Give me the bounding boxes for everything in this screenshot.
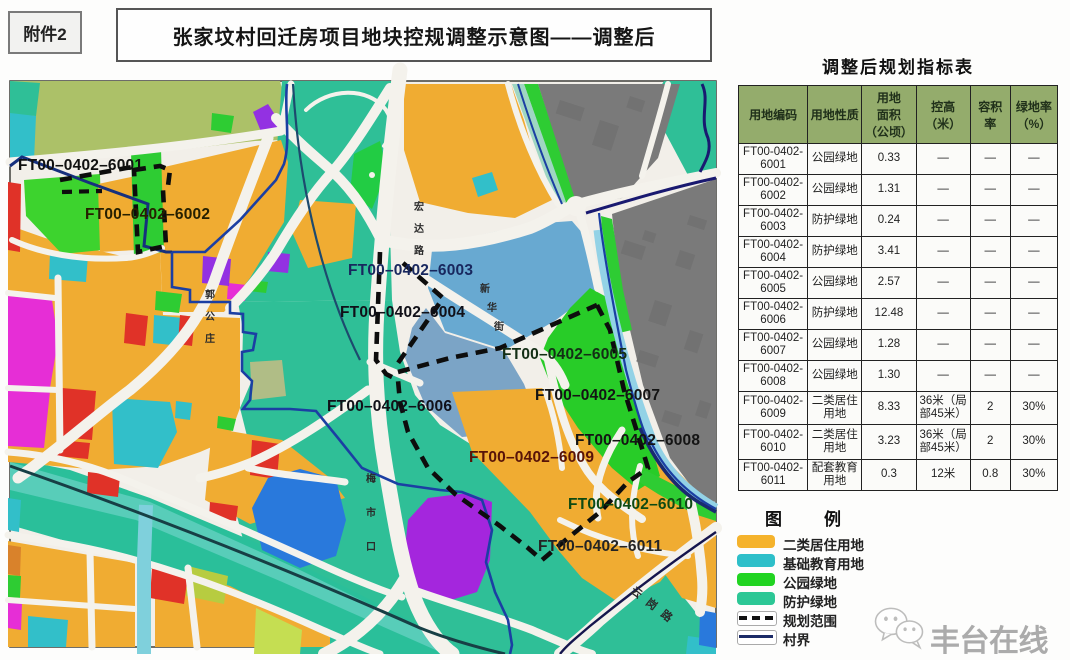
svg-text:FT00–0402–6010: FT00–0402–6010	[568, 496, 693, 513]
svg-text:FT00–0402–6002: FT00–0402–6002	[85, 206, 210, 223]
svg-text:FT00–0402–6003: FT00–0402–6003	[348, 262, 473, 279]
svg-text:FT00–0402–6006: FT00–0402–6006	[327, 398, 452, 415]
svg-text:郭: 郭	[205, 288, 215, 301]
svg-text:达: 达	[414, 222, 424, 235]
svg-text:FT00–0402–6005: FT00–0402–6005	[502, 346, 627, 363]
svg-text:路: 路	[414, 244, 425, 257]
svg-text:街: 街	[493, 320, 504, 333]
svg-text:FT00–0402–6008: FT00–0402–6008	[575, 432, 700, 449]
svg-text:新: 新	[480, 282, 490, 295]
svg-text:FT00–0402–6007: FT00–0402–6007	[535, 387, 660, 404]
svg-text:市: 市	[366, 506, 376, 519]
svg-text:FT00–0402–6009: FT00–0402–6009	[469, 449, 594, 466]
svg-text:华: 华	[487, 301, 497, 314]
svg-text:宏: 宏	[414, 200, 424, 213]
svg-text:FT00–0402–6004: FT00–0402–6004	[340, 304, 465, 321]
svg-text:FT00–0402–6001: FT00–0402–6001	[18, 157, 143, 174]
svg-text:口: 口	[366, 542, 376, 553]
svg-text:FT00–0402–6011: FT00–0402–6011	[538, 538, 663, 555]
svg-text:公: 公	[205, 311, 215, 323]
svg-text:梅: 梅	[366, 472, 376, 485]
svg-text:庄: 庄	[205, 332, 215, 345]
